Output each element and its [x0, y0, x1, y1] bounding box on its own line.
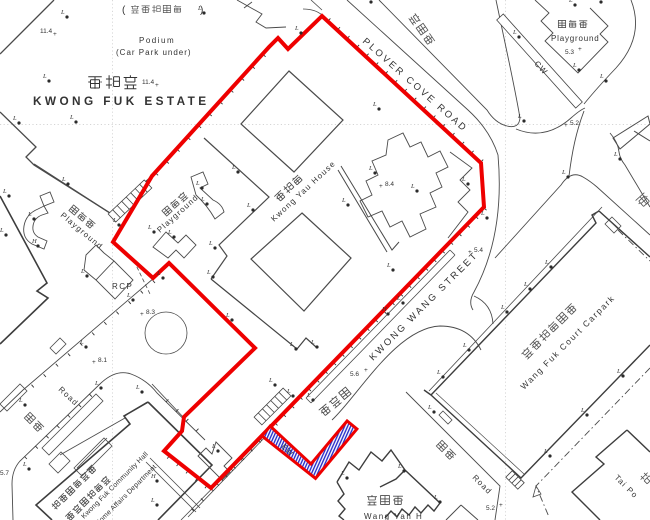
svg-text:L: L: [268, 377, 273, 384]
svg-text:Playground: Playground: [551, 34, 599, 43]
svg-text:L: L: [12, 115, 17, 122]
svg-text:L: L: [22, 461, 27, 468]
svg-text:5.6: 5.6: [350, 371, 359, 378]
svg-text:L: L: [436, 369, 441, 376]
svg-text:L: L: [500, 304, 505, 311]
svg-text:H: H: [31, 238, 37, 245]
svg-text:L: L: [613, 151, 618, 158]
svg-text:L: L: [523, 281, 528, 288]
svg-text:L: L: [517, 113, 522, 120]
svg-text:L: L: [480, 210, 485, 217]
svg-text:L: L: [197, 5, 202, 12]
svg-text:H: H: [381, 306, 387, 313]
svg-text:L: L: [368, 165, 373, 172]
svg-text:L: L: [246, 202, 251, 209]
svg-text:5.7: 5.7: [0, 470, 9, 477]
svg-text:L: L: [461, 176, 466, 183]
svg-text:(Car Park under): (Car Park under): [116, 48, 192, 57]
svg-text:+: +: [53, 31, 57, 38]
svg-text:L: L: [94, 380, 99, 387]
svg-text:Podium: Podium: [139, 36, 175, 45]
svg-text:L: L: [231, 164, 236, 171]
svg-text:L: L: [208, 240, 213, 247]
svg-text:L: L: [80, 268, 85, 275]
svg-text:L: L: [599, 73, 604, 80]
svg-text:L: L: [340, 470, 345, 477]
svg-text:+: +: [578, 46, 582, 53]
svg-text:L: L: [594, 0, 599, 1]
svg-text:L: L: [2, 188, 7, 195]
svg-text:L: L: [79, 339, 84, 346]
svg-text:L: L: [206, 269, 211, 276]
svg-text:L: L: [341, 197, 346, 204]
svg-text:L: L: [512, 29, 517, 36]
svg-text:L: L: [225, 312, 230, 319]
svg-text:L: L: [135, 384, 140, 391]
svg-text:L: L: [156, 270, 161, 277]
svg-text:+: +: [140, 311, 144, 318]
svg-text:L: L: [372, 101, 377, 108]
svg-text:+: +: [155, 82, 159, 89]
svg-text:L: L: [310, 339, 315, 346]
svg-text:L: L: [112, 217, 117, 224]
svg-text:5.2: 5.2: [486, 505, 495, 512]
svg-text:L: L: [364, 0, 369, 1]
svg-text:RCP: RCP: [112, 282, 133, 291]
svg-text:L: L: [433, 494, 438, 501]
svg-text:11.4: 11.4: [40, 28, 53, 35]
svg-text:L: L: [616, 368, 621, 375]
svg-text:L: L: [561, 169, 566, 176]
svg-text:L: L: [167, 229, 172, 236]
svg-text:11.4: 11.4: [142, 79, 155, 86]
svg-text:L: L: [195, 180, 200, 187]
svg-text:L: L: [150, 497, 155, 504]
svg-text:L: L: [286, 388, 291, 395]
svg-text:L: L: [18, 397, 23, 404]
svg-text:8.4: 8.4: [385, 181, 394, 188]
svg-text:L: L: [462, 342, 467, 349]
svg-text:+: +: [92, 359, 96, 366]
svg-text:L: L: [572, 62, 577, 69]
svg-text:L: L: [410, 183, 415, 190]
svg-text:8.1: 8.1: [98, 357, 107, 364]
svg-text:L: L: [580, 407, 585, 414]
svg-text:L: L: [61, 176, 66, 183]
svg-text:Wang Yan H: Wang Yan H: [364, 512, 423, 520]
svg-text:L: L: [544, 259, 549, 266]
svg-text:5.3: 5.3: [565, 49, 574, 56]
svg-text:L: L: [543, 448, 548, 455]
svg-text:+: +: [364, 367, 368, 374]
svg-text:5.2: 5.2: [570, 120, 579, 127]
svg-text:L: L: [294, 25, 299, 32]
svg-text:L: L: [69, 114, 74, 121]
svg-text:L: L: [126, 292, 131, 299]
svg-text:+: +: [379, 183, 383, 190]
svg-text:KWONG FUK ESTATE: KWONG FUK ESTATE: [33, 94, 210, 108]
svg-text:+: +: [499, 502, 503, 509]
svg-text:+: +: [564, 122, 568, 129]
svg-text:L: L: [27, 211, 32, 218]
svg-text:L: L: [60, 9, 65, 16]
svg-text:L: L: [386, 262, 391, 269]
svg-text:L: L: [568, 0, 573, 4]
svg-text:L: L: [289, 341, 294, 348]
svg-text:L: L: [396, 295, 401, 302]
svg-text:L: L: [397, 463, 402, 470]
svg-text:H: H: [150, 473, 156, 480]
svg-text:L: L: [147, 224, 152, 231]
svg-text:L: L: [0, 227, 4, 234]
svg-text:8.3: 8.3: [146, 309, 155, 316]
svg-text:L: L: [306, 392, 311, 399]
svg-text:L: L: [211, 443, 216, 450]
svg-text:L: L: [42, 73, 47, 80]
svg-text:L: L: [200, 196, 205, 203]
svg-text:L: L: [427, 404, 432, 411]
